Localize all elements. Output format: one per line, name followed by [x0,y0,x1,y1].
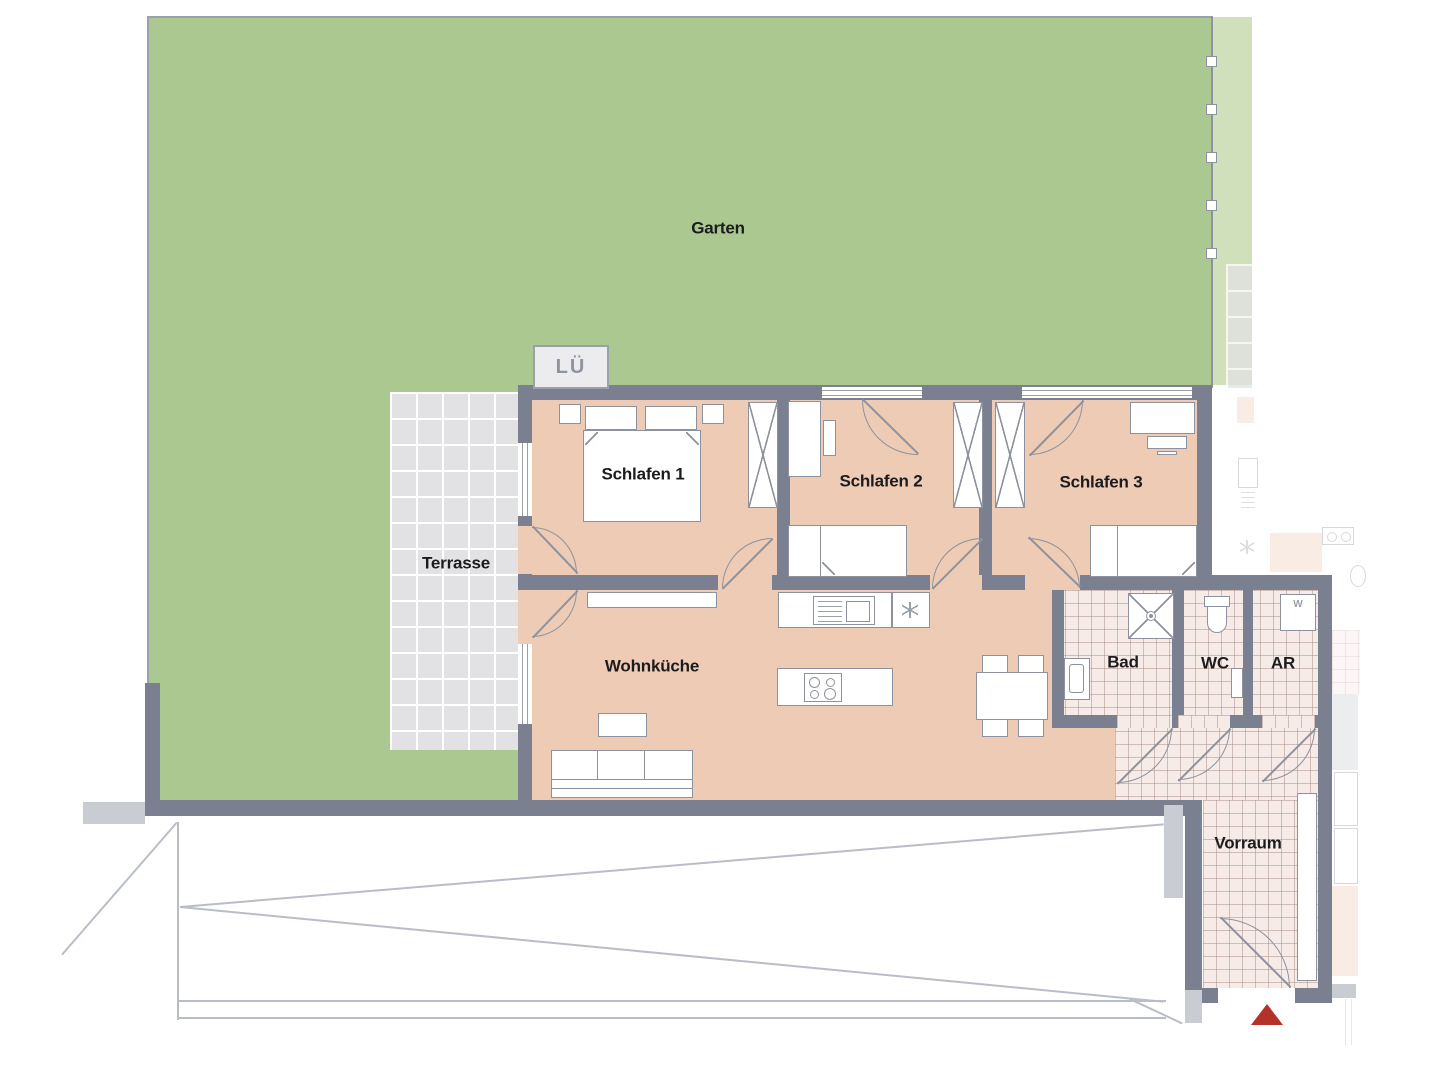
burner [1327,532,1337,542]
neighbor-kitchen-lines [1241,492,1255,512]
site-line-horizontal [178,1017,1166,1019]
neighbor-kitchen-unit [1238,458,1258,488]
neighbor-door [1334,828,1358,884]
neighbor-floor [1270,533,1322,572]
neighbor-door [1334,772,1358,826]
neighbor-appliance-symbol [1240,540,1254,554]
neighbor-floor [1237,397,1254,423]
neighbor-stair [1332,694,1358,770]
site-line-horizontal [178,1000,1166,1002]
neighbor-fixture [1350,565,1366,587]
floor-plan: LÜ [0,0,1440,1080]
neighbor-cooktop [1322,527,1354,545]
neighbor-floor [1332,886,1358,976]
burner [1341,532,1351,542]
neighbor-line [1351,999,1352,1045]
site-line-vertical [177,822,179,1020]
neighbor-unit [0,0,1440,1080]
neighbor-tiles [1332,630,1360,694]
neighbor-line [1345,999,1346,1045]
